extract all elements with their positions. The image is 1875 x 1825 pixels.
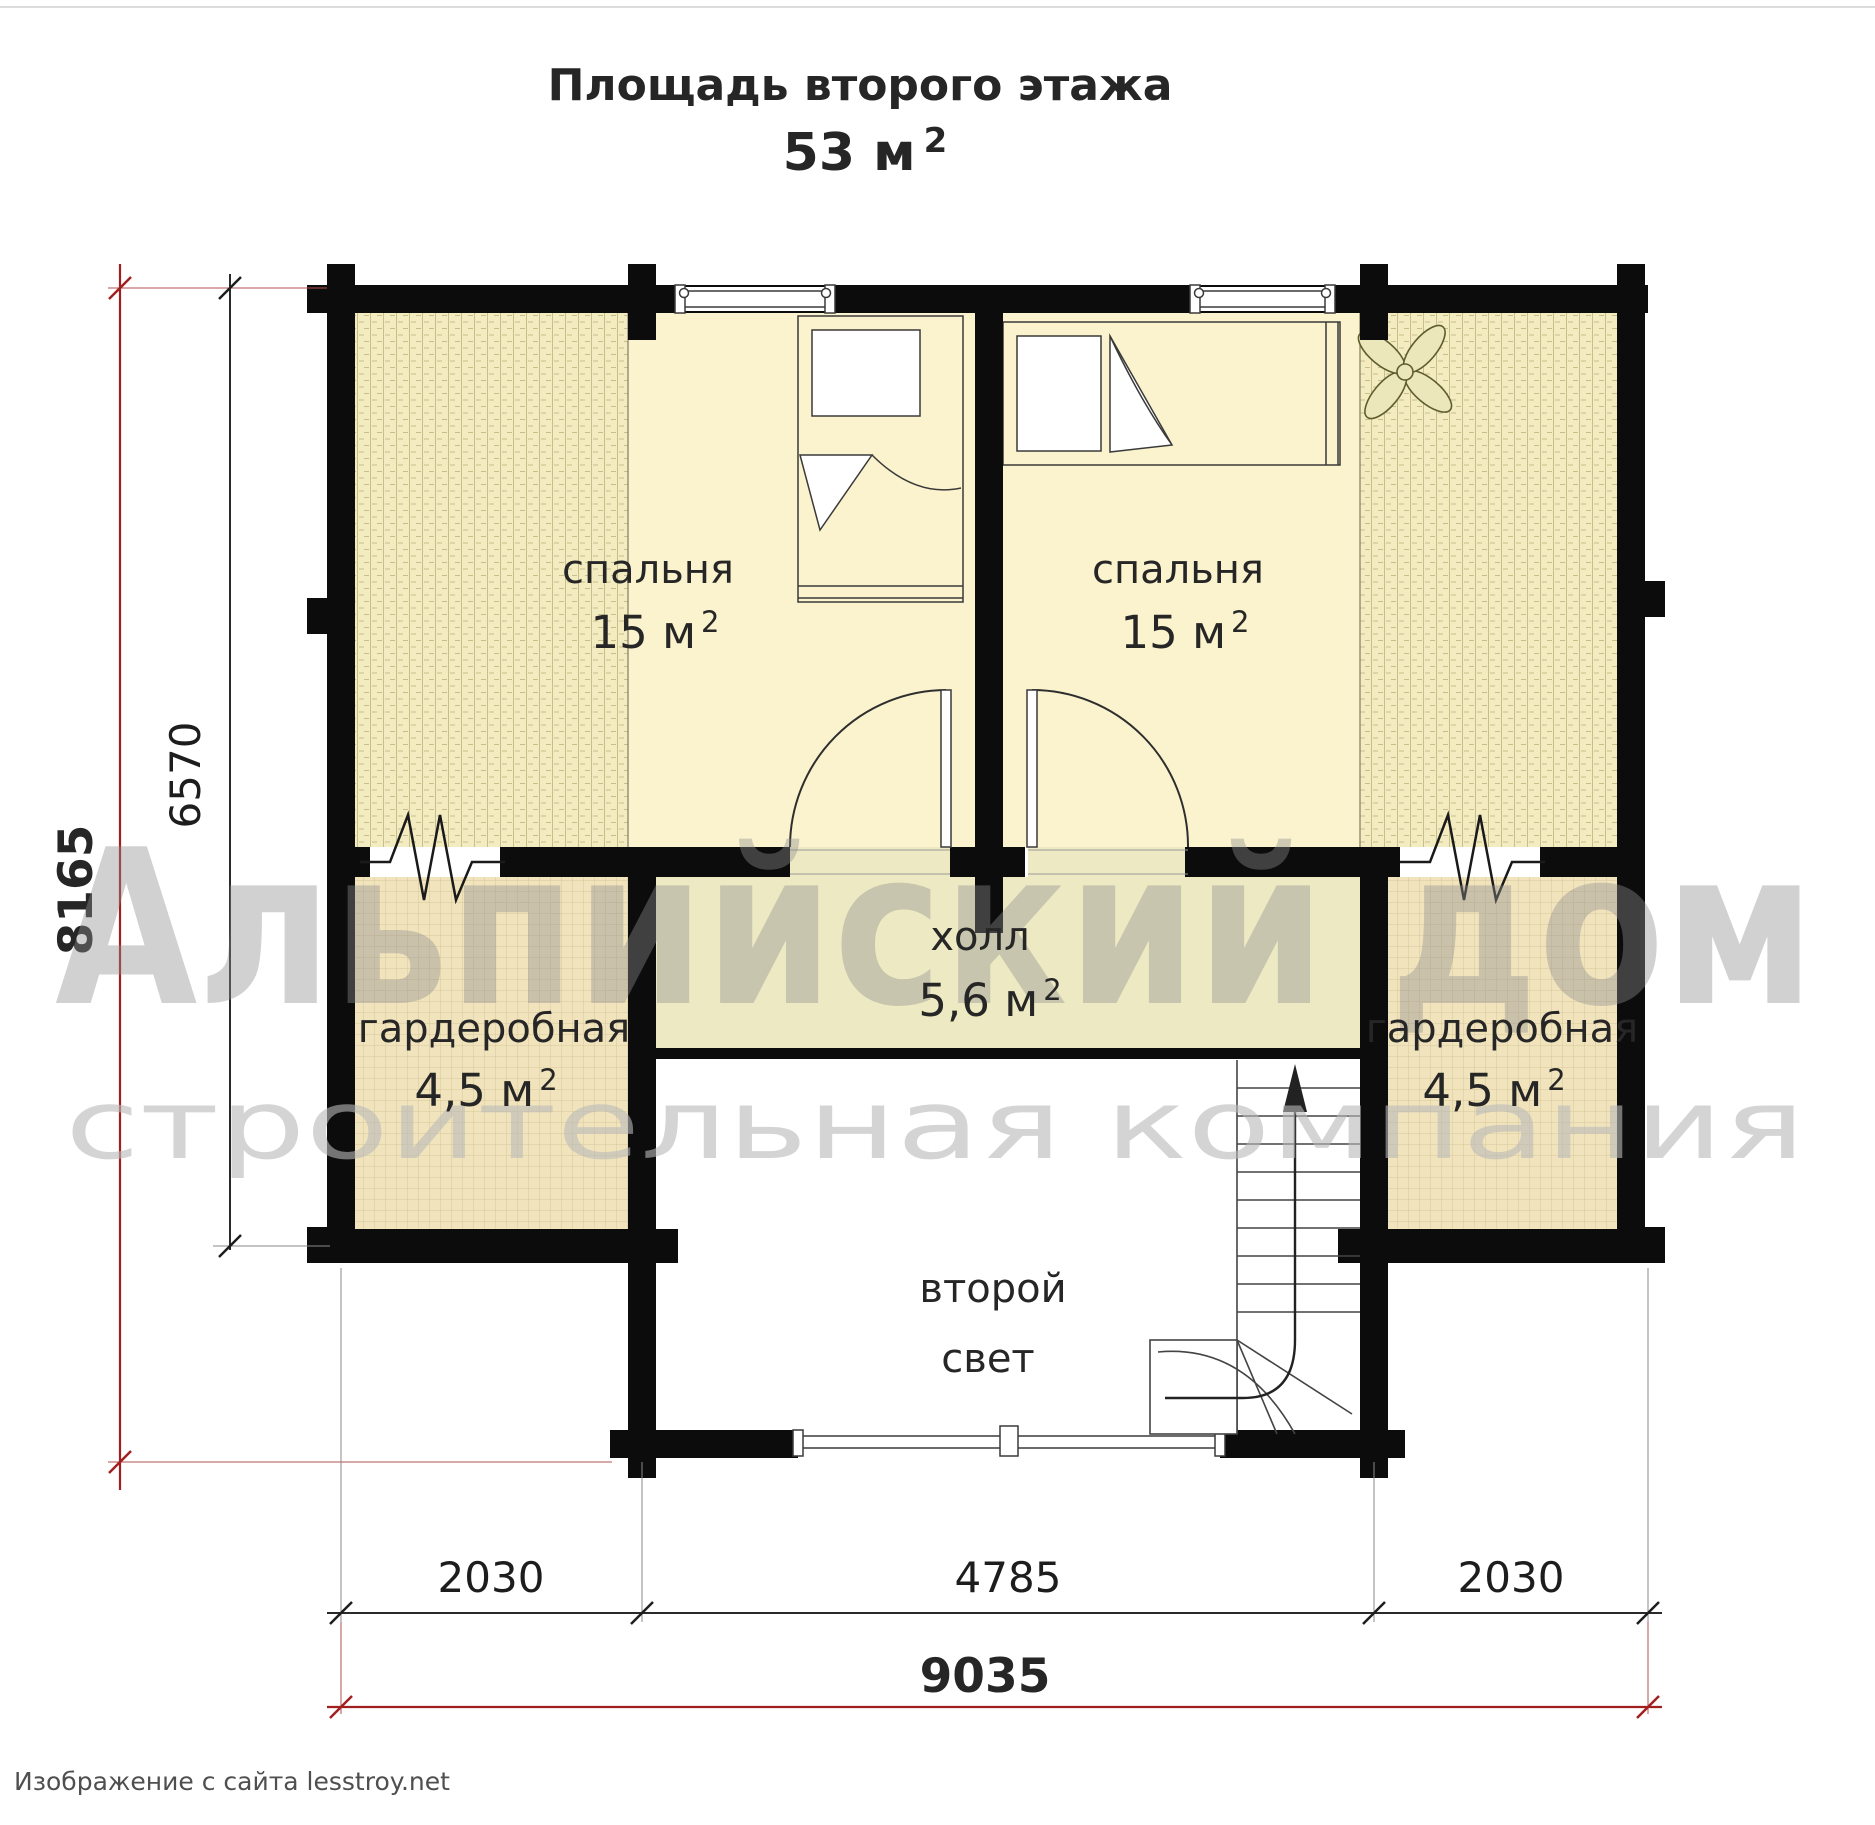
- wall-bottom-seg1: [610, 1430, 798, 1458]
- wardrobe-left-label: гардеробная: [358, 1006, 630, 1052]
- watermark-line2: строительная компания: [65, 1069, 1805, 1181]
- title-block: Площадь второго этажа 53 м2: [548, 60, 1173, 183]
- wall-bottom-seg2: [1220, 1430, 1405, 1458]
- log-stub-right-mid: [1645, 581, 1665, 617]
- wall-wardrobe-right-bottom: [1338, 1229, 1665, 1263]
- wardrobe-right-label: гардеробная: [1366, 1006, 1638, 1052]
- page-title: Площадь второго этажа: [548, 60, 1173, 111]
- second-light-label-line2: свет: [941, 1336, 1034, 1382]
- hall-label: холл: [930, 914, 1029, 960]
- bedroom-right-label: спальня: [1092, 547, 1264, 593]
- log-stub-left-mid: [307, 598, 327, 634]
- bed-left: [798, 316, 963, 602]
- dimension-bottom-middle: 4785: [955, 1553, 1062, 1602]
- log-stub-top-2: [1360, 264, 1388, 340]
- second-light-label-line1: второй: [919, 1266, 1066, 1312]
- wall-wardrobe-left-bottom: [307, 1229, 678, 1263]
- window-top-left: [675, 285, 835, 313]
- log-stub-top-1: [628, 264, 656, 340]
- bed-right: [1003, 322, 1340, 465]
- bedroom-left-label: спальня: [562, 547, 734, 593]
- dimension-bottom-total: 9035: [920, 1649, 1051, 1704]
- window-top-right: [1190, 285, 1335, 313]
- dimension-bottom-right: 2030: [1458, 1553, 1565, 1602]
- total-area: 53 м2: [783, 121, 948, 183]
- page-top-divider: [0, 6, 1875, 8]
- credit-text: Изображение с сайта lesstroy.net: [14, 1767, 450, 1796]
- dimension-bottom-left: 2030: [438, 1553, 545, 1602]
- floor-plan-canvas: 6570 8165 2030 4785 2030 9035 Альпийский…: [0, 0, 1875, 1825]
